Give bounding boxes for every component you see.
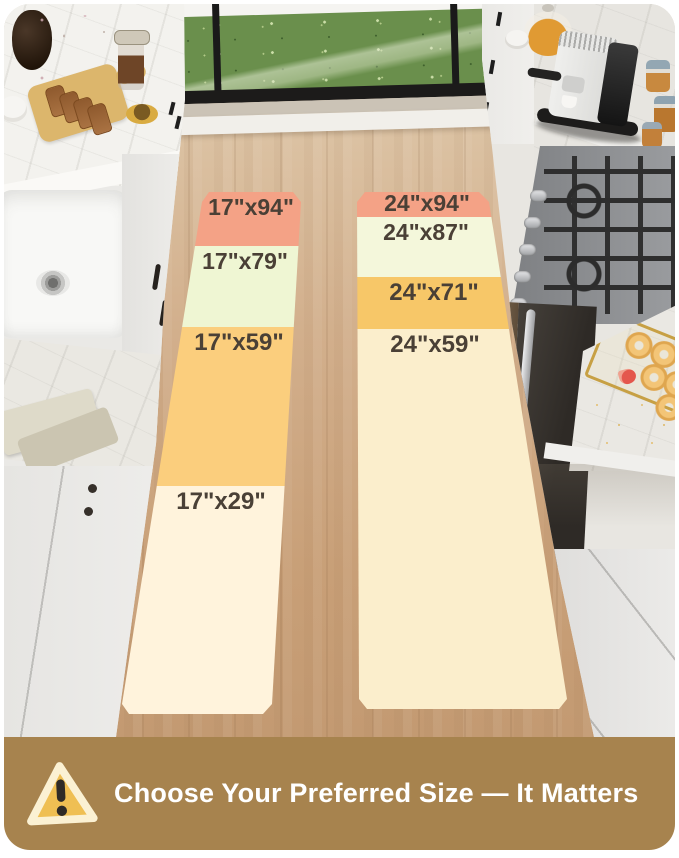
counter-shadow [534, 464, 675, 554]
rug-size-label: 17"x59" [194, 331, 284, 355]
teapot-lid [542, 4, 554, 12]
rug-size-label: 17"x94" [208, 196, 294, 219]
cup [506, 30, 528, 46]
rug-size-label: 24"x87" [383, 221, 469, 244]
sink-drain [36, 270, 70, 296]
rug-size-label: 17"x29" [176, 490, 266, 514]
farmhouse-sink [4, 190, 128, 338]
rug-size-label: 24"x71" [389, 281, 479, 305]
stove-knob [519, 244, 536, 256]
spice-jar [646, 60, 670, 92]
cabinet-knob [88, 484, 97, 493]
group-head [561, 75, 585, 94]
espresso-machine [532, 24, 660, 152]
warning-triangle-icon [22, 757, 100, 831]
rug-size-label: 17"x79" [202, 250, 288, 273]
rug-size-label: 24"x94" [384, 192, 470, 215]
kitchen-scene: 17"x94" 17"x79" 17"x59" 17"x29" 24"x94" … [4, 4, 675, 737]
stove-grates [544, 156, 675, 314]
stove-knob [514, 271, 531, 283]
banner-title: Choose Your Preferred Size — It Matters [114, 778, 638, 809]
stove-knob [530, 190, 547, 202]
stove-knob [524, 217, 541, 229]
jar-lid [114, 30, 150, 45]
cabinet-knob [84, 507, 93, 516]
product-image-card: 17"x94" 17"x79" 17"x59" 17"x29" 24"x94" … [4, 4, 675, 850]
rug-size-label: 24"x59" [390, 333, 480, 357]
exclamation-bar [56, 779, 66, 802]
window [154, 4, 504, 152]
spice-jar [642, 122, 662, 148]
small-bowl [126, 104, 158, 124]
size-banner: Choose Your Preferred Size — It Matters [4, 737, 675, 850]
